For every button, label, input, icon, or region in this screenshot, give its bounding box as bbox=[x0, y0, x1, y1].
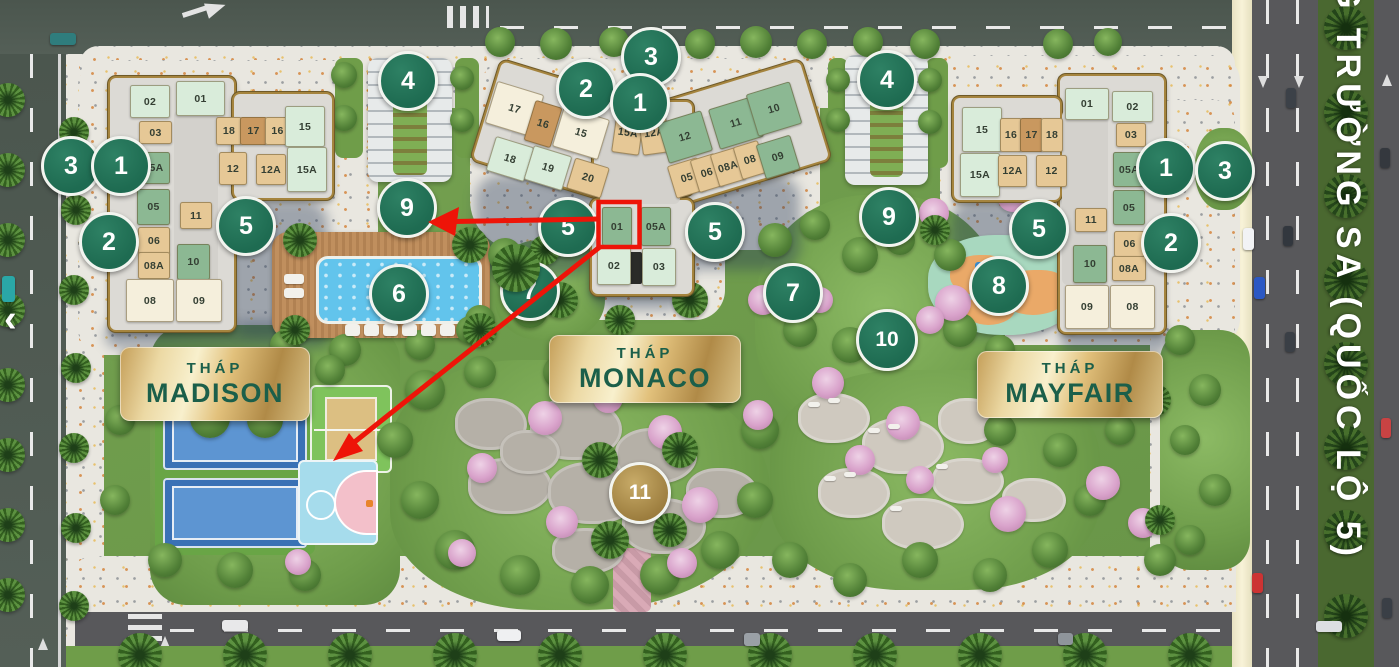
plaque-monaco-name: MONACO bbox=[579, 363, 711, 394]
blossom-tree bbox=[916, 306, 944, 334]
palm-tree bbox=[920, 215, 950, 245]
amenity-marker-3[interactable]: 3 bbox=[1195, 141, 1255, 201]
lane-arrow bbox=[1294, 76, 1304, 88]
plaque-mayfair-name: MAYFAIR bbox=[1005, 378, 1135, 409]
amenity-marker-9[interactable]: 9 bbox=[859, 187, 919, 247]
tree bbox=[148, 543, 182, 577]
tree bbox=[315, 355, 345, 385]
amenity-marker-5[interactable]: 5 bbox=[538, 197, 598, 257]
plaque-monaco-prefix: THÁP bbox=[617, 345, 674, 362]
sun-lounger bbox=[421, 324, 436, 336]
tree bbox=[826, 68, 850, 92]
unit-monaco-01[interactable]: 01 bbox=[602, 207, 632, 246]
amenity-marker-4[interactable]: 4 bbox=[378, 51, 438, 111]
car bbox=[1058, 633, 1073, 645]
unit-madison-11[interactable]: 11 bbox=[180, 202, 212, 229]
palm-tree bbox=[59, 433, 89, 463]
unit-madison-09[interactable]: 09 bbox=[176, 279, 222, 322]
blossom-tree bbox=[886, 406, 920, 440]
plaque-mayfair-prefix: THÁP bbox=[1042, 360, 1099, 377]
amenity-marker-2[interactable]: 2 bbox=[79, 212, 139, 272]
unit-mayfair-10[interactable]: 10 bbox=[1073, 245, 1107, 283]
palm-tree bbox=[605, 305, 635, 335]
car bbox=[1243, 228, 1254, 250]
tree bbox=[918, 68, 942, 92]
basketball-hoop bbox=[366, 500, 373, 507]
sun-lounger bbox=[364, 324, 379, 336]
tree bbox=[1043, 29, 1073, 59]
blossom-tree bbox=[682, 487, 718, 523]
car bbox=[744, 633, 760, 646]
car bbox=[1380, 148, 1390, 168]
palm-tree bbox=[463, 313, 497, 347]
unit-mayfair-15A[interactable]: 15A bbox=[960, 153, 1000, 197]
tree bbox=[540, 28, 572, 60]
sun-lounger bbox=[284, 288, 304, 298]
unit-mayfair-12A[interactable]: 12A bbox=[998, 155, 1027, 187]
unit-mayfair-12[interactable]: 12 bbox=[1036, 155, 1067, 187]
sun-lounger bbox=[345, 324, 360, 336]
road-right-outer bbox=[1374, 0, 1399, 667]
tree bbox=[701, 531, 739, 569]
unit-mayfair-01[interactable]: 01 bbox=[1065, 88, 1109, 120]
tree bbox=[737, 482, 773, 518]
unit-madison-06[interactable]: 06 bbox=[138, 227, 170, 255]
blossom-tree bbox=[667, 548, 697, 578]
tree bbox=[910, 29, 940, 59]
masterplan-map: 0201031817161505A1212A15A0511061008A0809… bbox=[0, 0, 1399, 667]
unit-monaco-05A[interactable]: 05A bbox=[641, 207, 671, 246]
palm-tree bbox=[283, 223, 317, 257]
tree bbox=[1032, 532, 1068, 568]
basketball-court bbox=[298, 460, 378, 545]
sun-lounger bbox=[383, 324, 398, 336]
tree bbox=[826, 108, 850, 132]
unit-mayfair-05[interactable]: 05 bbox=[1113, 190, 1145, 225]
blossom-tree bbox=[743, 400, 773, 430]
blossom-tree bbox=[448, 539, 476, 567]
plaque-madison-name: MADISON bbox=[146, 378, 284, 409]
amenity-marker-1[interactable]: 1 bbox=[91, 136, 151, 196]
tree bbox=[377, 422, 413, 458]
unit-mayfair-02[interactable]: 02 bbox=[1112, 91, 1153, 122]
sun-lounger bbox=[808, 402, 820, 407]
palm-tree bbox=[61, 513, 91, 543]
tree bbox=[740, 26, 772, 58]
unit-mayfair-08A[interactable]: 08A bbox=[1112, 256, 1146, 281]
car bbox=[1285, 332, 1295, 352]
amenity-marker-7[interactable]: 7 bbox=[763, 263, 823, 323]
tree bbox=[685, 29, 715, 59]
palm-tree bbox=[582, 442, 618, 478]
stone-path bbox=[500, 430, 560, 474]
amenity-marker-1[interactable]: 1 bbox=[1136, 138, 1196, 198]
palm-tree bbox=[1145, 505, 1175, 535]
unit-madison-03[interactable]: 03 bbox=[139, 121, 172, 144]
blossom-tree bbox=[845, 445, 875, 475]
tree bbox=[485, 27, 515, 57]
sun-lounger bbox=[868, 428, 880, 433]
tree bbox=[450, 66, 474, 90]
tree bbox=[571, 566, 609, 604]
blossom-tree bbox=[285, 549, 311, 575]
road-arrow-marking bbox=[204, 0, 228, 19]
blossom-tree bbox=[528, 401, 562, 435]
palm-tree bbox=[59, 275, 89, 305]
unit-mayfair-11[interactable]: 11 bbox=[1075, 208, 1107, 232]
tree bbox=[1144, 544, 1176, 576]
tree bbox=[1199, 474, 1231, 506]
sun-lounger bbox=[440, 324, 455, 336]
palm-tree bbox=[591, 521, 629, 559]
tree bbox=[405, 370, 445, 410]
tree bbox=[1189, 374, 1221, 406]
car bbox=[50, 33, 76, 45]
unit-madison-01[interactable]: 01 bbox=[176, 81, 225, 116]
palm-tree bbox=[452, 227, 488, 263]
palm-tree bbox=[662, 432, 698, 468]
lane-arrow bbox=[1382, 74, 1392, 86]
lane-marking bbox=[1266, 0, 1269, 667]
tree bbox=[331, 62, 357, 88]
unit-mayfair-17[interactable]: 17 bbox=[1020, 118, 1043, 152]
car bbox=[1316, 621, 1342, 632]
tree bbox=[772, 542, 808, 578]
palm-tree bbox=[492, 244, 540, 292]
unit-madison-08[interactable]: 08 bbox=[126, 279, 174, 322]
unit-monaco-03[interactable]: 03 bbox=[642, 248, 676, 286]
tree bbox=[450, 108, 474, 132]
car bbox=[1252, 573, 1263, 593]
basketball-centre-circle bbox=[306, 490, 336, 520]
blossom-tree bbox=[990, 496, 1026, 532]
lane-marking bbox=[30, 54, 33, 667]
sun-lounger bbox=[402, 324, 417, 336]
amenity-marker-11[interactable]: 11 bbox=[609, 462, 671, 524]
unit-madison-12[interactable]: 12 bbox=[219, 152, 247, 185]
blossom-tree bbox=[982, 447, 1008, 473]
unit-mayfair-18[interactable]: 18 bbox=[1041, 118, 1063, 152]
tree bbox=[800, 210, 830, 240]
sun-lounger bbox=[284, 274, 304, 284]
amenity-marker-8[interactable]: 8 bbox=[969, 256, 1029, 316]
crosswalk bbox=[447, 6, 489, 28]
palm-tree bbox=[61, 353, 91, 383]
blossom-tree bbox=[906, 466, 934, 494]
sun-lounger bbox=[888, 424, 900, 429]
tree bbox=[401, 481, 439, 519]
tennis-court-2 bbox=[163, 478, 307, 548]
unit-mayfair-09[interactable]: 09 bbox=[1065, 285, 1109, 329]
tree bbox=[797, 29, 827, 59]
amenity-marker-5[interactable]: 5 bbox=[216, 196, 276, 256]
sun-lounger bbox=[890, 506, 902, 511]
car bbox=[222, 620, 248, 631]
lane-marking bbox=[170, 629, 1399, 632]
tree bbox=[1043, 433, 1077, 467]
amenity-marker-6[interactable]: 6 bbox=[369, 264, 429, 324]
tree bbox=[902, 542, 938, 578]
unit-madison-15A[interactable]: 15A bbox=[287, 147, 327, 192]
car bbox=[1382, 598, 1392, 618]
street-label: G TRƯỜNG SA (QUỐC LỘ 5) bbox=[1328, 0, 1367, 561]
unit-madison-17[interactable]: 17 bbox=[240, 117, 267, 145]
unit-mayfair-16[interactable]: 16 bbox=[1000, 118, 1022, 152]
unit-madison-12A[interactable]: 12A bbox=[256, 154, 286, 185]
unit-mayfair-03[interactable]: 03 bbox=[1116, 123, 1146, 147]
car bbox=[497, 630, 521, 641]
tree bbox=[1105, 415, 1135, 445]
unit-mayfair-15[interactable]: 15 bbox=[962, 107, 1002, 152]
tree bbox=[758, 223, 792, 257]
blossom-tree bbox=[546, 506, 578, 538]
plaque-madison[interactable]: THÁPMADISON bbox=[120, 347, 310, 421]
amenity-marker-1[interactable]: 1 bbox=[610, 73, 670, 133]
tree bbox=[464, 356, 496, 388]
unit-madison-15[interactable]: 15 bbox=[285, 106, 325, 147]
car bbox=[1254, 277, 1265, 299]
unit-madison-10[interactable]: 10 bbox=[177, 244, 210, 280]
tree bbox=[100, 485, 130, 515]
tree bbox=[1165, 325, 1195, 355]
plaque-madison-prefix: THÁP bbox=[187, 360, 244, 377]
palm-tree bbox=[280, 315, 310, 345]
tree bbox=[973, 558, 1007, 592]
tree bbox=[500, 555, 540, 595]
tree bbox=[833, 563, 867, 597]
car bbox=[1286, 88, 1296, 108]
lane-arrow bbox=[38, 638, 48, 650]
tree bbox=[984, 414, 1016, 446]
car bbox=[1283, 226, 1293, 246]
carousel-prev-button[interactable]: ‹ bbox=[4, 300, 17, 338]
amenity-marker-9[interactable]: 9 bbox=[377, 178, 437, 238]
unit-monaco-02[interactable]: 02 bbox=[597, 247, 631, 285]
blossom-tree bbox=[467, 453, 497, 483]
sun-lounger bbox=[844, 472, 856, 477]
unit-madison-02[interactable]: 02 bbox=[130, 85, 170, 118]
sun-lounger bbox=[824, 476, 836, 481]
lane-arrow bbox=[1258, 76, 1268, 88]
blossom-tree bbox=[1086, 466, 1120, 500]
unit-mayfair-08[interactable]: 08 bbox=[1110, 285, 1155, 329]
palm-tree bbox=[59, 591, 89, 621]
tree bbox=[1094, 28, 1122, 56]
blossom-tree bbox=[812, 367, 844, 399]
amenity-marker-5[interactable]: 5 bbox=[1009, 199, 1069, 259]
amenity-marker-2[interactable]: 2 bbox=[1141, 213, 1201, 273]
amenity-marker-10[interactable]: 10 bbox=[856, 309, 918, 371]
car bbox=[1381, 418, 1391, 438]
amenity-marker-5[interactable]: 5 bbox=[685, 202, 745, 262]
amenity-marker-2[interactable]: 2 bbox=[556, 59, 616, 119]
tree bbox=[1170, 425, 1200, 455]
lane-marking bbox=[1296, 0, 1299, 667]
plaque-monaco[interactable]: THÁPMONACO bbox=[549, 335, 741, 403]
sun-lounger bbox=[936, 464, 948, 469]
sun-lounger bbox=[828, 398, 840, 403]
tree bbox=[217, 552, 253, 588]
unit-madison-08A[interactable]: 08A bbox=[138, 252, 170, 279]
tree bbox=[331, 105, 357, 131]
plaque-mayfair[interactable]: THÁPMAYFAIR bbox=[977, 351, 1163, 418]
tree bbox=[1175, 525, 1205, 555]
tree bbox=[918, 110, 942, 134]
amenity-marker-4[interactable]: 4 bbox=[857, 50, 917, 110]
unit-madison-05[interactable]: 05 bbox=[137, 189, 170, 225]
unit-madison-18[interactable]: 18 bbox=[216, 117, 242, 145]
